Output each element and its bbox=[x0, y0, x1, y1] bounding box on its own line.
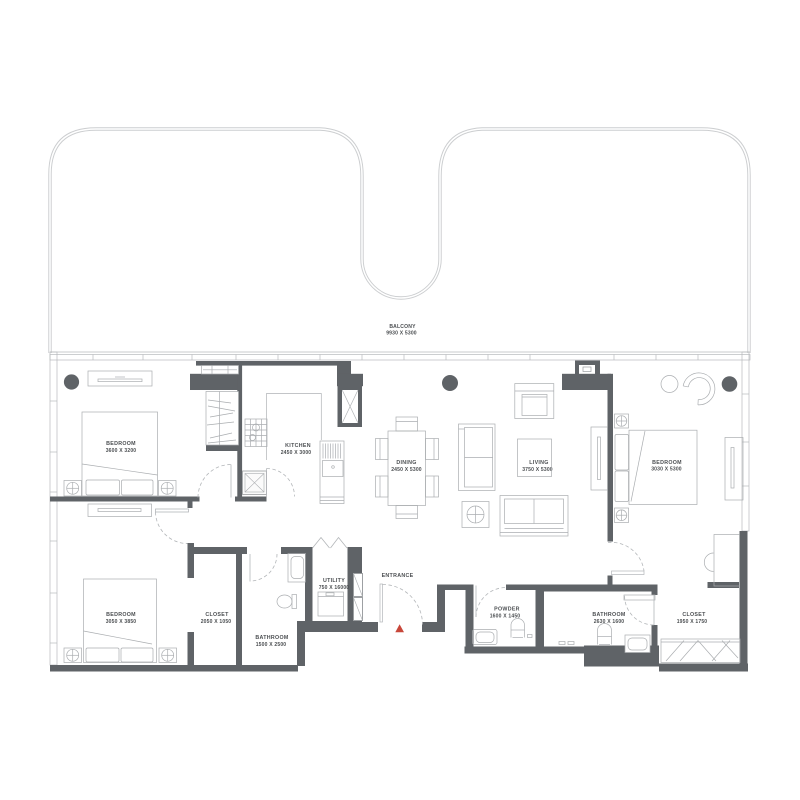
svg-text:POWDER: POWDER bbox=[494, 607, 520, 613]
svg-text:9930 X 5300: 9930 X 5300 bbox=[386, 331, 417, 337]
svg-text:KITCHEN: KITCHEN bbox=[285, 443, 311, 449]
svg-text:750 X 16000: 750 X 16000 bbox=[319, 585, 350, 591]
svg-text:2050 X 1050: 2050 X 1050 bbox=[201, 619, 232, 625]
svg-text:UTILITY: UTILITY bbox=[323, 578, 345, 584]
svg-text:3030 X 5300: 3030 X 5300 bbox=[651, 467, 682, 473]
svg-text:3600 X 3200: 3600 X 3200 bbox=[106, 448, 137, 454]
svg-text:DINING: DINING bbox=[396, 460, 416, 466]
svg-text:CLOSET: CLOSET bbox=[205, 612, 229, 618]
svg-text:ENTRANCE: ENTRANCE bbox=[382, 573, 414, 579]
svg-text:1950 X 1750: 1950 X 1750 bbox=[677, 619, 708, 625]
svg-text:BEDROOM: BEDROOM bbox=[106, 441, 136, 447]
svg-text:3750 X 5300: 3750 X 5300 bbox=[522, 467, 553, 473]
svg-text:BEDROOM: BEDROOM bbox=[652, 460, 682, 466]
svg-text:BATHROOM: BATHROOM bbox=[255, 635, 288, 641]
svg-text:3050 X 3850: 3050 X 3850 bbox=[106, 619, 137, 625]
svg-text:BEDROOM: BEDROOM bbox=[106, 612, 136, 618]
svg-text:LIVING: LIVING bbox=[529, 460, 548, 466]
svg-text:2630 X 1600: 2630 X 1600 bbox=[594, 619, 625, 625]
svg-text:1500 X 2500: 1500 X 2500 bbox=[256, 642, 287, 648]
svg-text:BALCONY: BALCONY bbox=[389, 324, 416, 330]
svg-text:2450 X 3000: 2450 X 3000 bbox=[281, 450, 312, 456]
svg-text:CLOSET: CLOSET bbox=[682, 612, 706, 618]
svg-text:BATHROOM: BATHROOM bbox=[592, 612, 625, 618]
svg-text:2450 X 5300: 2450 X 5300 bbox=[391, 467, 422, 473]
